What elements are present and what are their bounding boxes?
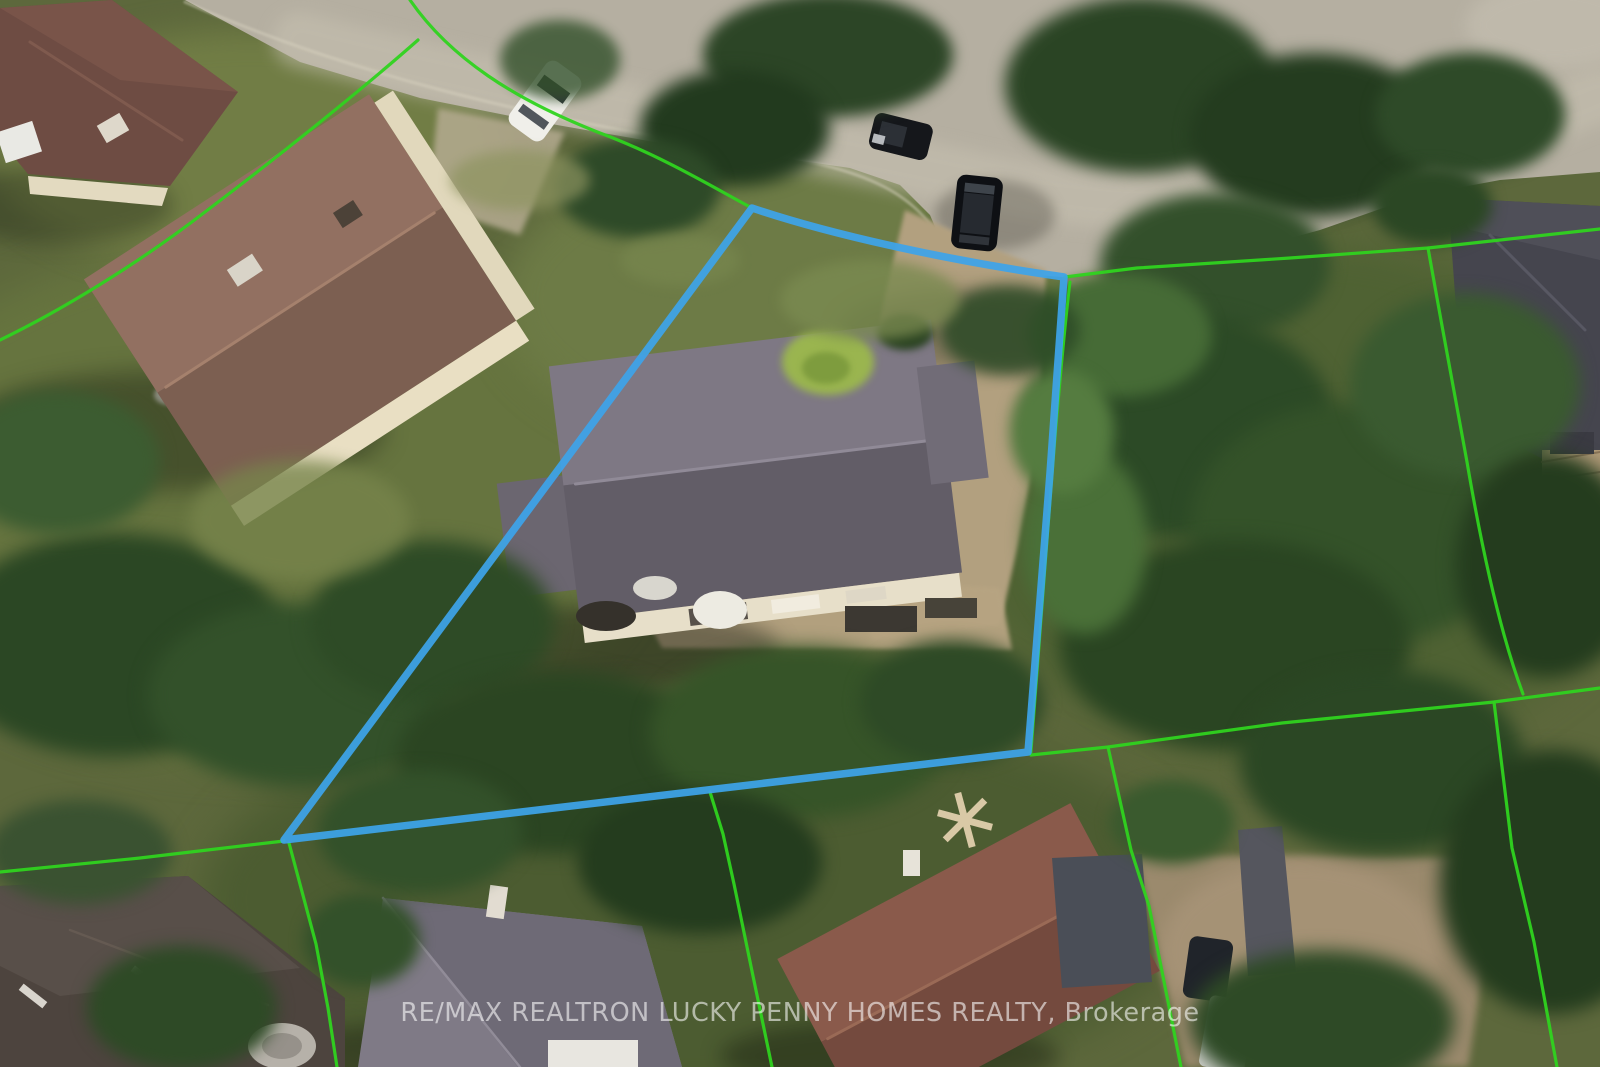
scene-root bbox=[0, 0, 1600, 1067]
trees-30 bbox=[1110, 780, 1234, 864]
bottomright-chimney bbox=[903, 850, 920, 876]
trees-24 bbox=[860, 640, 1044, 764]
trees-32 bbox=[87, 946, 277, 1067]
lawn-light-patch-2 bbox=[190, 460, 410, 580]
patio-furniture-2 bbox=[925, 598, 977, 618]
lawn-light-patch-3 bbox=[620, 234, 740, 286]
aerial-photo-svg: RE/MAX REALTRON LUCKY PENNY HOMES REALTY… bbox=[0, 0, 1600, 1067]
black-suv-roof bbox=[960, 193, 994, 236]
bright-shrub-core bbox=[802, 352, 850, 384]
bottomleft-gazebo-top bbox=[262, 1033, 302, 1059]
patio-chairs bbox=[633, 576, 677, 600]
patio-dark-object bbox=[576, 601, 636, 631]
trees-16 bbox=[1010, 370, 1114, 494]
dry-verge-patch bbox=[450, 150, 590, 210]
bottomright-dark-wing bbox=[1052, 854, 1152, 988]
lawn-light-patch-1 bbox=[780, 260, 960, 340]
trees-8 bbox=[1372, 165, 1492, 245]
trees-3 bbox=[500, 20, 620, 100]
aerial-photo: RE/MAX REALTRON LUCKY PENNY HOMES REALTY… bbox=[0, 0, 1600, 1067]
patio-furniture-1 bbox=[845, 606, 917, 632]
trees-6 bbox=[1375, 53, 1565, 177]
patio-umbrella bbox=[693, 591, 747, 629]
bottomcenter-garage-door bbox=[548, 1040, 638, 1067]
brokerage-watermark: RE/MAX REALTRON LUCKY PENNY HOMES REALTY… bbox=[400, 998, 1199, 1028]
trees-25 bbox=[578, 790, 822, 934]
